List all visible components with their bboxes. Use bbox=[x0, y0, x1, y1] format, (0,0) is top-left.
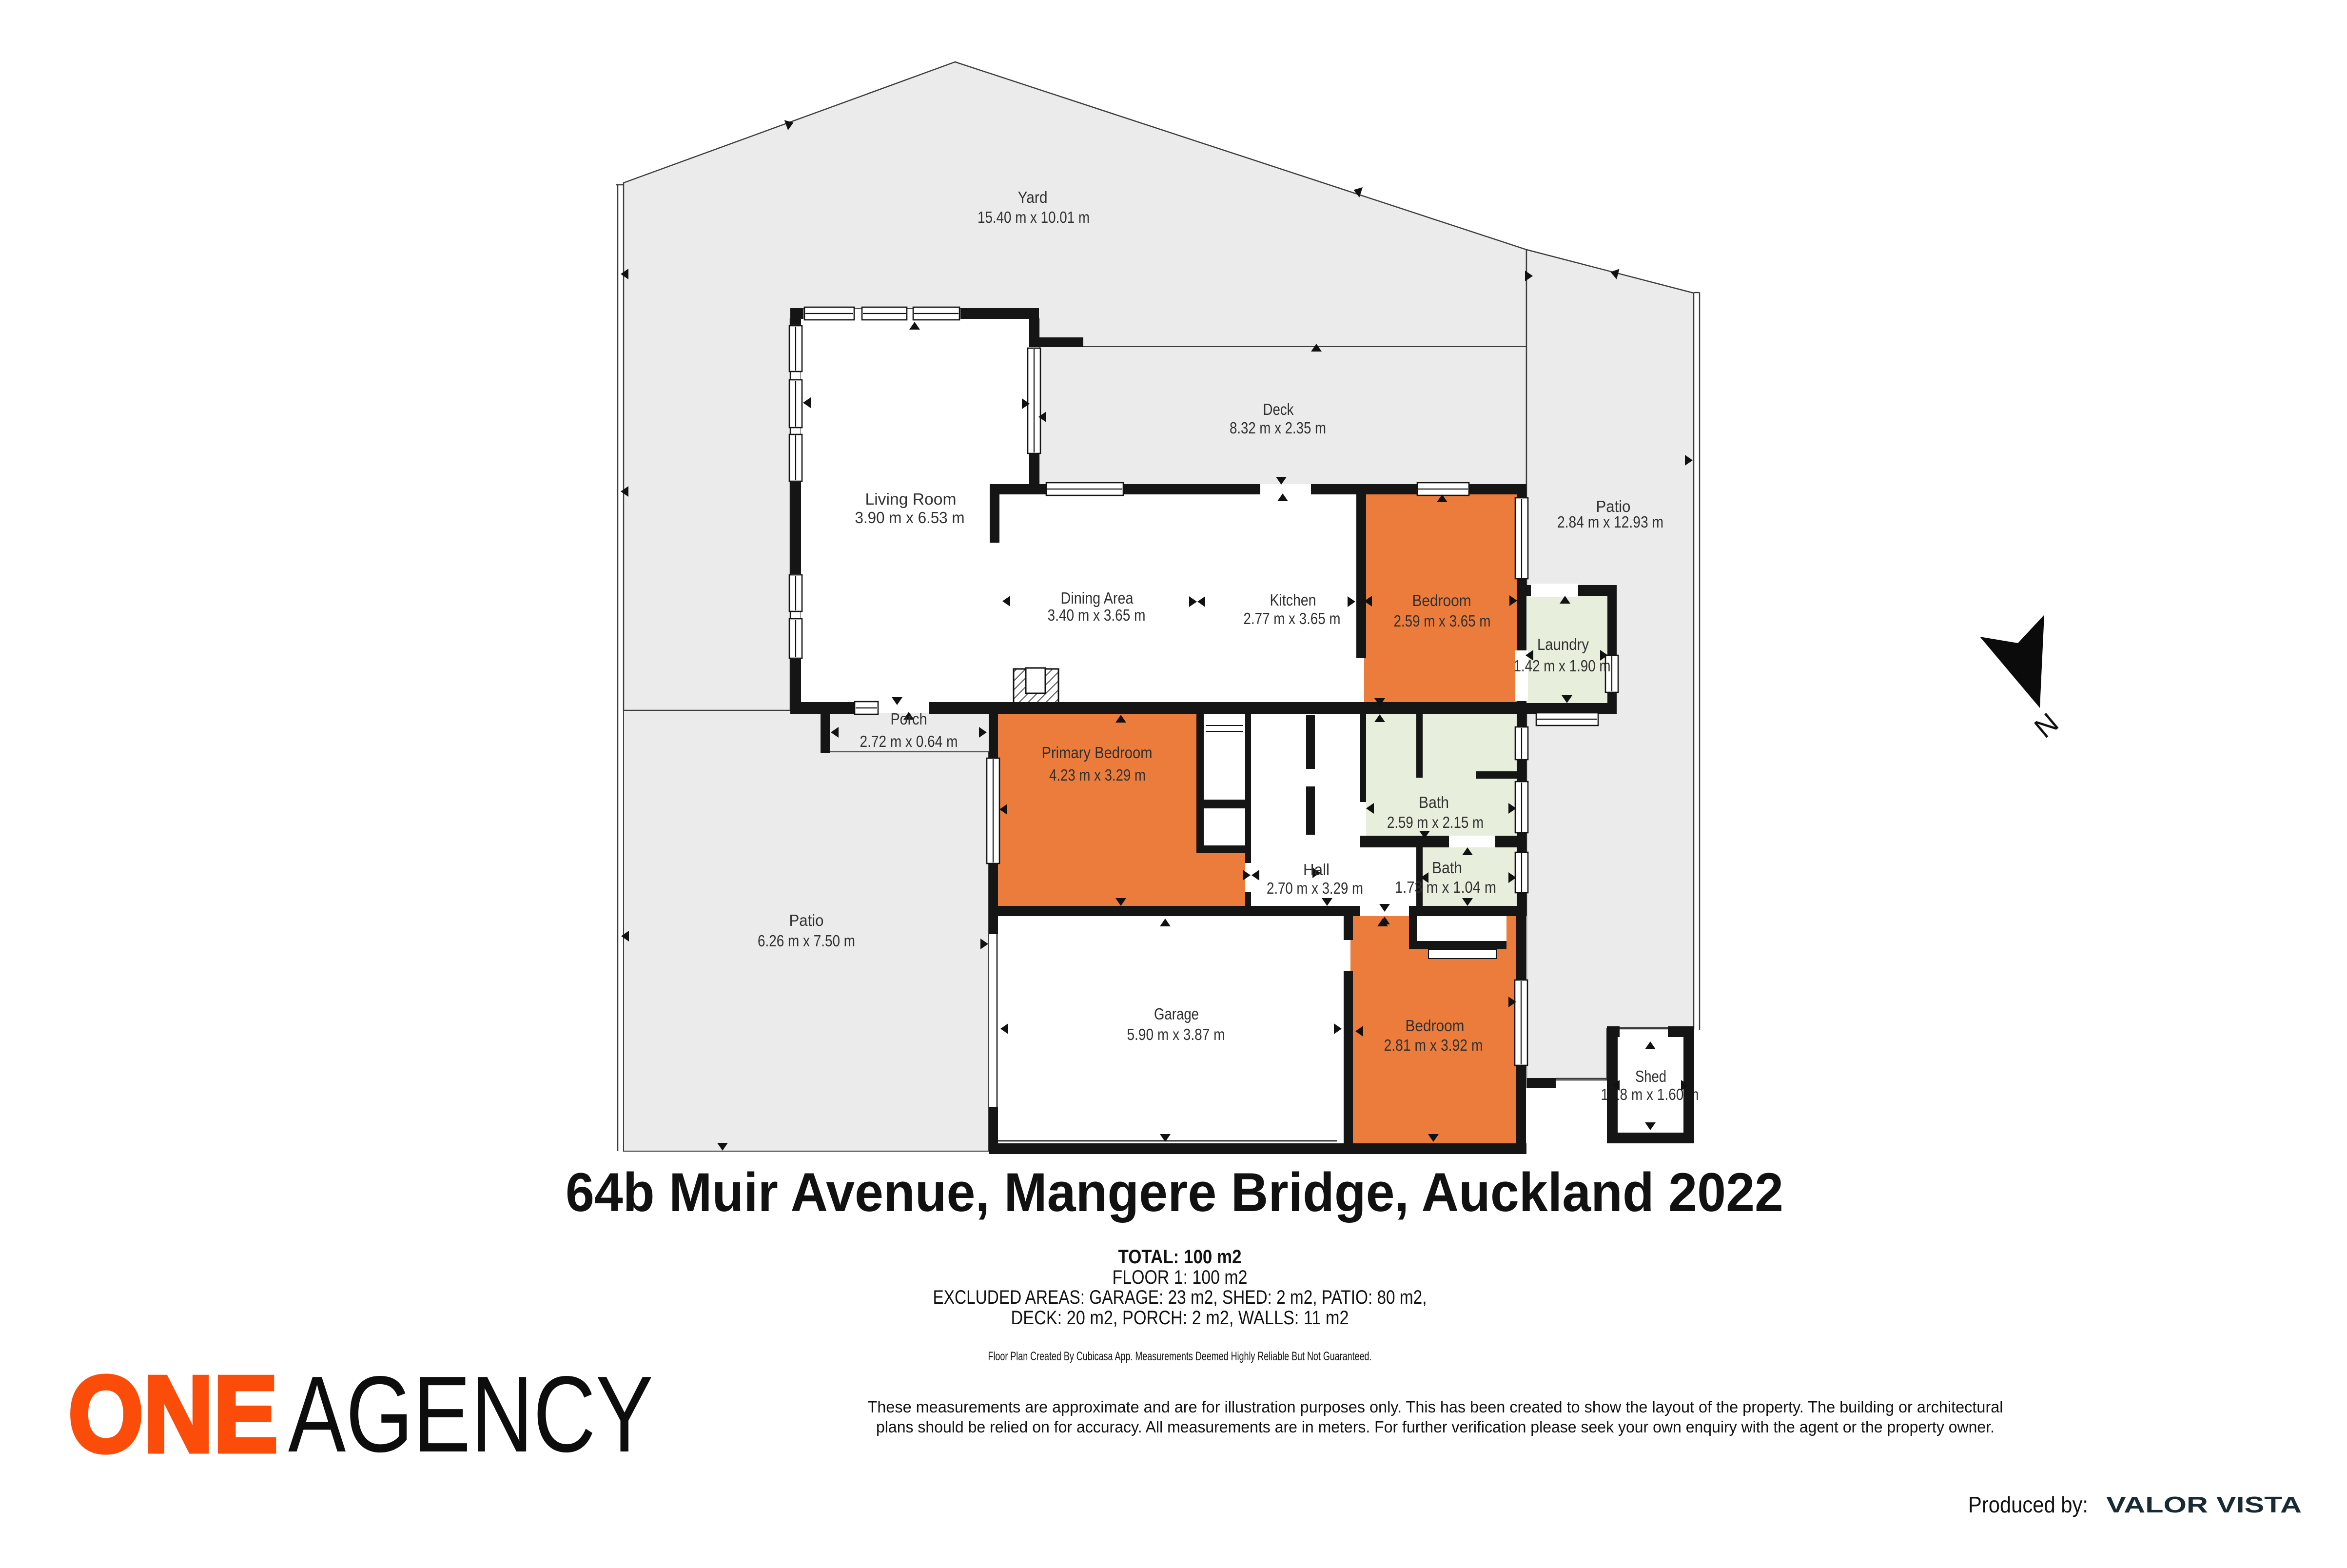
svg-text:Produced by:: Produced by: bbox=[1968, 1492, 2088, 1517]
svg-text:EXCLUDED AREAS: GARAGE: 23 m2,: EXCLUDED AREAS: GARAGE: 23 m2, SHED: 2 m… bbox=[933, 1287, 1427, 1308]
svg-text:Bedroom: Bedroom bbox=[1406, 1017, 1465, 1035]
svg-text:Yard: Yard bbox=[1018, 188, 1048, 206]
svg-text:Bedroom: Bedroom bbox=[1412, 591, 1471, 609]
svg-text:15.40 m x 10.01 m: 15.40 m x 10.01 m bbox=[978, 208, 1090, 226]
svg-text:4.23 m x 3.29 m: 4.23 m x 3.29 m bbox=[1049, 766, 1146, 784]
svg-text:Patio: Patio bbox=[789, 911, 824, 929]
svg-text:Kitchen: Kitchen bbox=[1270, 591, 1316, 609]
svg-text:2.77 m x 3.65 m: 2.77 m x 3.65 m bbox=[1244, 609, 1341, 627]
svg-text:1.73 m x 1.04 m: 1.73 m x 1.04 m bbox=[1395, 878, 1496, 896]
svg-text:8.32 m x 2.35 m: 8.32 m x 2.35 m bbox=[1230, 419, 1326, 437]
svg-text:Laundry: Laundry bbox=[1537, 635, 1589, 653]
svg-text:ONE: ONE bbox=[68, 1354, 278, 1475]
svg-text:2.59 m x 3.65 m: 2.59 m x 3.65 m bbox=[1394, 612, 1491, 630]
svg-text:plans should be relied on for: plans should be relied on for accuracy. … bbox=[876, 1418, 1995, 1436]
svg-text:Garage: Garage bbox=[1154, 1005, 1199, 1023]
svg-text:2.84 m x 12.93 m: 2.84 m x 12.93 m bbox=[1557, 513, 1663, 531]
svg-text:2.59 m x 2.15 m: 2.59 m x 2.15 m bbox=[1387, 813, 1484, 831]
svg-text:Hall: Hall bbox=[1303, 861, 1330, 879]
svg-text:5.90 m x 3.87 m: 5.90 m x 3.87 m bbox=[1127, 1025, 1225, 1043]
svg-text:DECK: 20 m2, PORCH: 2 m2, WALL: DECK: 20 m2, PORCH: 2 m2, WALLS: 11 m2 bbox=[1011, 1307, 1349, 1329]
svg-text:Living Room: Living Room bbox=[865, 490, 957, 508]
svg-text:Primary Bedroom: Primary Bedroom bbox=[1042, 744, 1153, 762]
svg-text:Dining Area: Dining Area bbox=[1061, 589, 1134, 607]
svg-text:TOTAL: 100 m2: TOTAL: 100 m2 bbox=[1118, 1246, 1242, 1268]
svg-text:64b Muir Avenue, Mangere Bridg: 64b Muir Avenue, Mangere Bridge, Aucklan… bbox=[566, 1162, 1783, 1223]
svg-text:1.42 m x 1.90 m: 1.42 m x 1.90 m bbox=[1514, 657, 1611, 675]
svg-text:Bath: Bath bbox=[1419, 793, 1449, 811]
svg-text:FLOOR 1: 100 m2: FLOOR 1: 100 m2 bbox=[1113, 1267, 1248, 1288]
svg-text:2.72 m x 0.64 m: 2.72 m x 0.64 m bbox=[860, 732, 958, 750]
svg-text:VALOR VISTA: VALOR VISTA bbox=[2106, 1492, 2302, 1517]
svg-text:6.26 m x 7.50 m: 6.26 m x 7.50 m bbox=[758, 932, 855, 950]
svg-text:3.90 m x 6.53 m: 3.90 m x 6.53 m bbox=[855, 509, 965, 527]
svg-text:These measurements are approxi: These measurements are approximate and a… bbox=[868, 1398, 2003, 1416]
svg-text:Deck: Deck bbox=[1263, 400, 1294, 418]
svg-text:AGENCY: AGENCY bbox=[288, 1354, 653, 1475]
svg-text:Bath: Bath bbox=[1432, 859, 1462, 877]
svg-text:2.70 m x 3.29 m: 2.70 m x 3.29 m bbox=[1267, 879, 1363, 897]
svg-text:2.81 m x 3.92 m: 2.81 m x 3.92 m bbox=[1384, 1036, 1483, 1054]
svg-text:Porch: Porch bbox=[891, 710, 927, 728]
svg-text:Floor Plan Created By Cubicasa: Floor Plan Created By Cubicasa App. Meas… bbox=[988, 1350, 1372, 1363]
svg-text:3.40 m x 3.65 m: 3.40 m x 3.65 m bbox=[1048, 606, 1146, 624]
